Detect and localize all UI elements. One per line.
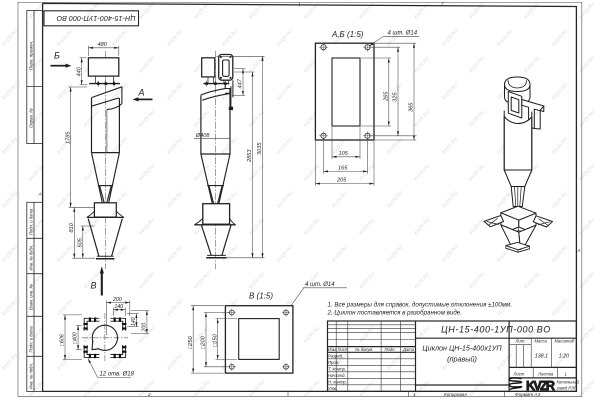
- svg-text:Инв. № подл.: Инв. № подл.: [29, 363, 34, 389]
- svg-text:1: 1: [413, 392, 416, 397]
- svg-text:А: А: [577, 248, 581, 253]
- svg-text:1:20: 1:20: [559, 354, 570, 360]
- svg-text:Дата: Дата: [402, 347, 415, 352]
- svg-text:3035: 3035: [257, 142, 263, 155]
- svg-text:Масса: Масса: [535, 339, 548, 344]
- svg-text:447: 447: [238, 78, 244, 88]
- svg-text:12 отв. Ø18: 12 отв. Ø18: [100, 372, 135, 378]
- svg-text:Взам. инв. №: Взам. инв. №: [29, 284, 34, 310]
- svg-text:Перв. примен.: Перв. примен.: [29, 41, 34, 70]
- svg-text:1785: 1785: [65, 131, 71, 144]
- svg-text:200: 200: [142, 323, 148, 333]
- svg-text:200: 200: [112, 297, 122, 303]
- svg-text:105: 105: [339, 151, 349, 157]
- svg-text:А: А: [138, 88, 145, 98]
- svg-text:365: 365: [409, 102, 415, 112]
- svg-text:440: 440: [76, 66, 82, 76]
- svg-text:Изм.: Изм.: [328, 347, 337, 352]
- svg-text:Инв. № дубл.: Инв. № дубл.: [29, 245, 34, 271]
- svg-text:165: 165: [338, 165, 348, 171]
- svg-text:(правый): (правый): [447, 355, 477, 364]
- svg-text:А: А: [38, 192, 42, 197]
- svg-text:325: 325: [393, 92, 399, 102]
- svg-text:завод РЭП: завод РЭП: [556, 386, 577, 391]
- svg-text:Лист: Лист: [513, 371, 525, 376]
- svg-text:Формат А3: Формат А3: [515, 392, 541, 397]
- svg-text:Масштаб: Масштаб: [555, 339, 575, 344]
- svg-text:ЦН-15-400-1УП-000 ВО: ЦН-15-400-1УП-000 ВО: [441, 325, 551, 335]
- svg-text:2853: 2853: [247, 149, 253, 163]
- svg-text:2: 2: [147, 392, 151, 397]
- svg-text:№ докум.: № докум.: [355, 347, 373, 352]
- svg-text:Подп.: Подп.: [385, 347, 396, 352]
- svg-text:505: 505: [77, 237, 83, 247]
- svg-text:205: 205: [336, 177, 347, 183]
- svg-text:Циклон ЦН-15-400х1УП: Циклон ЦН-15-400х1УП: [422, 344, 502, 353]
- svg-text:Т. контр.: Т. контр.: [328, 367, 346, 372]
- svg-text:В: В: [91, 281, 97, 291]
- svg-text:Лит.: Лит.: [515, 339, 526, 344]
- svg-text:4 шт. Ø14: 4 шт. Ø14: [305, 282, 335, 288]
- svg-text:ЦН-15-400-1УП-000 ВО: ЦН-15-400-1УП-000 ВО: [56, 14, 135, 22]
- svg-text:Пров.: Пров.: [328, 360, 339, 365]
- svg-text:Ø408: Ø408: [195, 133, 211, 139]
- svg-text:Подп. и дата: Подп. и дата: [29, 208, 34, 235]
- svg-text:480: 480: [98, 42, 108, 48]
- svg-text:□150: □150: [212, 333, 218, 347]
- svg-text:810: 810: [69, 222, 75, 232]
- svg-text:□400: □400: [73, 332, 79, 344]
- svg-text:Копировал: Копировал: [444, 392, 467, 397]
- svg-text:4 шт. Ø14: 4 шт. Ø14: [388, 31, 418, 37]
- svg-text:138,1: 138,1: [535, 354, 549, 360]
- svg-text:В (1:5): В (1:5): [249, 292, 273, 301]
- svg-text:2. Циклон поставляется в разоб: 2. Циклон поставляется в разобранном вид…: [327, 310, 462, 317]
- svg-text:Подп. и дата: Подп. и дата: [29, 326, 34, 353]
- svg-text:Н. контр.: Н. контр.: [328, 380, 347, 385]
- svg-text:□606: □606: [60, 334, 66, 346]
- svg-text:1: 1: [565, 371, 567, 376]
- svg-text:KVZR: KVZR: [526, 379, 555, 393]
- svg-text:140: 140: [114, 304, 123, 310]
- svg-text:Б: Б: [54, 51, 60, 61]
- svg-text:Справ. №: Справ. №: [29, 108, 34, 128]
- svg-text:А,Б (1:5): А,Б (1:5): [331, 30, 364, 39]
- svg-text:Лист: Лист: [337, 347, 349, 352]
- svg-text:□200: □200: [201, 335, 207, 349]
- svg-text:7: 7: [441, 1, 444, 6]
- svg-text:Утв.: Утв.: [328, 386, 338, 391]
- svg-text:Листов: Листов: [537, 371, 554, 376]
- svg-text:Котельный: Котельный: [557, 380, 580, 385]
- svg-text:□250: □250: [188, 335, 194, 349]
- svg-text:140: 140: [131, 317, 137, 326]
- svg-text:Разраб.: Разраб.: [328, 354, 343, 359]
- svg-text:265: 265: [383, 91, 389, 102]
- svg-text:1. Все размеры для справок, до: 1. Все размеры для справок, допустимые о…: [328, 301, 513, 308]
- svg-text:Нач.отд.: Нач.отд.: [328, 373, 346, 378]
